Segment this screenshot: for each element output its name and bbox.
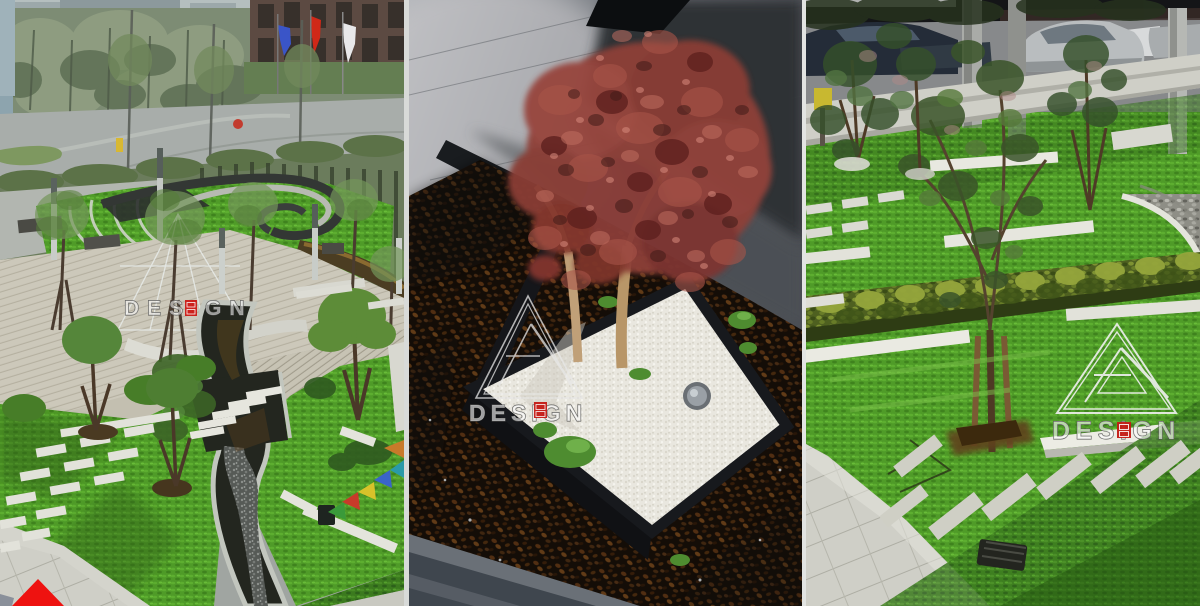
svg-text:DESIGN: DESIGN (1052, 417, 1181, 445)
svg-text:DESIGN: DESIGN (469, 400, 587, 426)
